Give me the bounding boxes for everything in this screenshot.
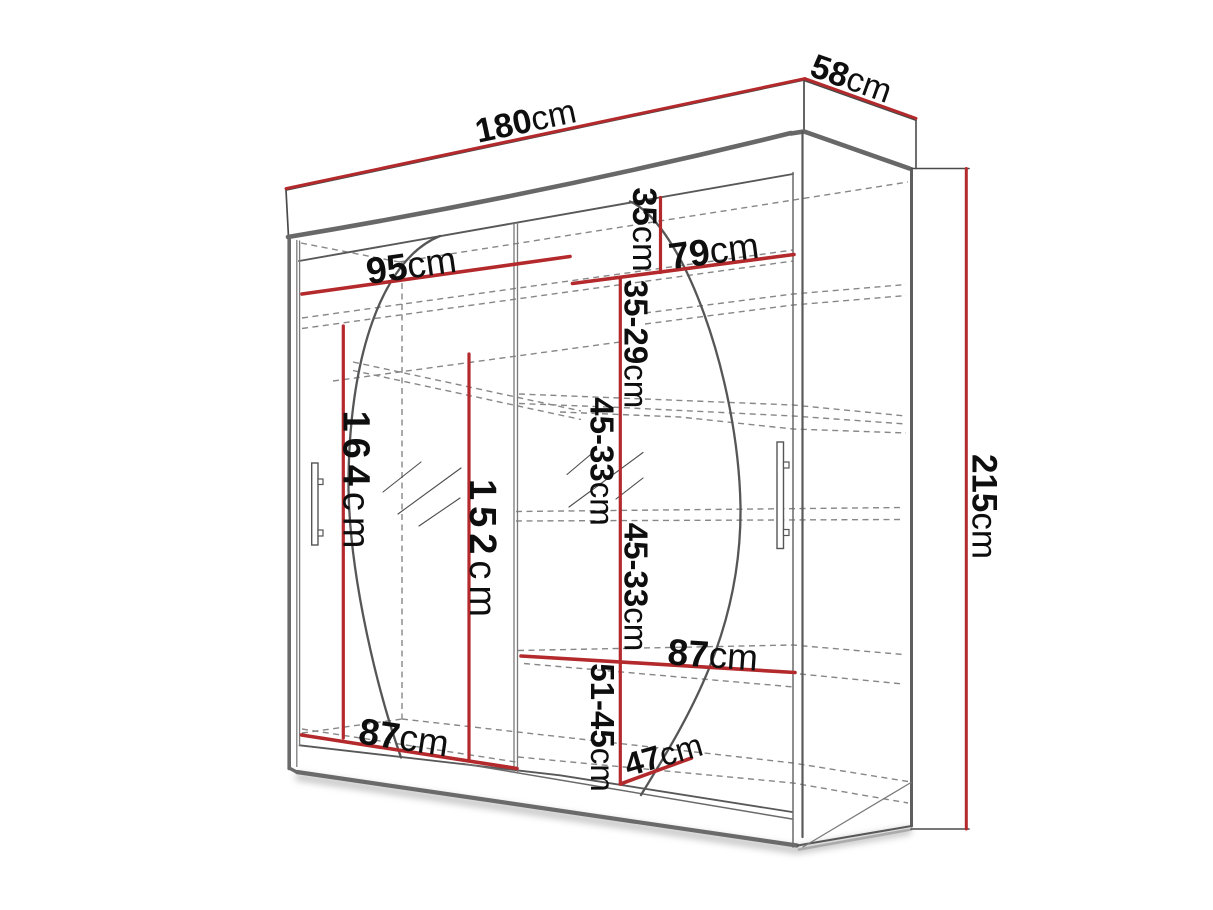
svg-text:47cm: 47cm: [620, 727, 706, 784]
svg-text:164cm: 164cm: [335, 410, 377, 554]
svg-text:51-45cm: 51-45cm: [584, 663, 621, 791]
svg-text:87cm: 87cm: [356, 711, 452, 765]
svg-text:45-33cm: 45-33cm: [584, 397, 621, 525]
svg-text:79cm: 79cm: [666, 225, 761, 277]
svg-text:35-29cm: 35-29cm: [618, 280, 655, 408]
svg-text:180cm: 180cm: [472, 92, 580, 150]
svg-text:215cm: 215cm: [965, 454, 1004, 559]
svg-text:58cm: 58cm: [806, 47, 897, 111]
svg-text:35cm: 35cm: [625, 187, 663, 271]
svg-text:45-33cm: 45-33cm: [618, 523, 655, 651]
svg-text:87cm: 87cm: [666, 631, 759, 678]
svg-text:152cm: 152cm: [461, 479, 503, 623]
